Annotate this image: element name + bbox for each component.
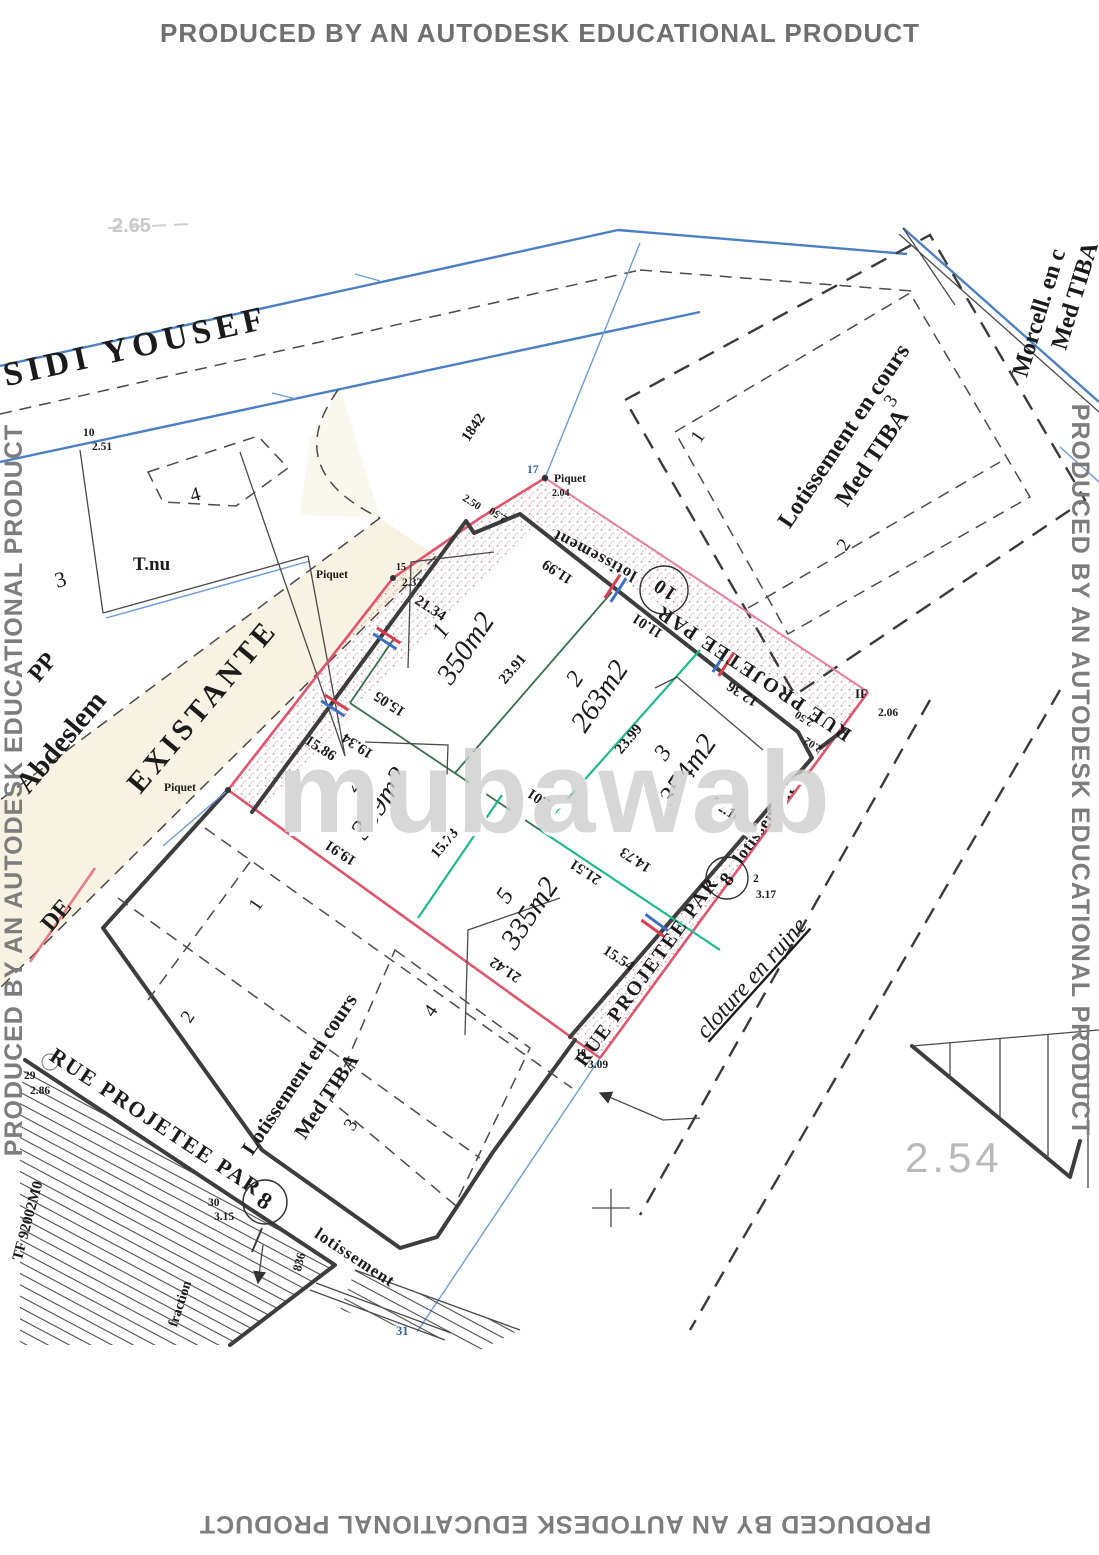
elevation-254: 2.54	[905, 1134, 1003, 1181]
north-block-labels: Lotissement en cours Med TIBA 1 2 3	[687, 339, 916, 555]
point-31-number: 31	[396, 1324, 409, 1338]
point-15-number: 15	[396, 562, 406, 573]
parcel-3-left: 3	[52, 566, 69, 593]
dim-ne1: 11.99	[540, 556, 576, 587]
dim-tie-1842: 1842	[459, 411, 489, 445]
mubawab-watermark: mubawab mubawab	[277, 727, 837, 861]
cadastral-plan-page: PRODUCED BY AN AUTODESK EDUCATIONAL PROD…	[0, 0, 1099, 1555]
sidi-yousef-road-lines	[0, 230, 912, 518]
point-29-number: 29	[24, 1070, 36, 1082]
dim-depth3: 15.05	[371, 687, 408, 719]
pp-label: PP	[23, 648, 62, 687]
point-17-value: 2.04	[552, 488, 570, 499]
point-17-piquet: Piquet	[554, 473, 586, 485]
autodesk-watermark-right: PRODUCED BY AN AUTODESK EDUCATIONAL PROD…	[1066, 404, 1094, 1136]
south-parcel-3: 3	[340, 1115, 363, 1135]
dim-depth1: 23.91	[496, 651, 530, 687]
south-block-labels: Lotissement en cours Med TIBA 1 2 3 4	[177, 895, 443, 1159]
point-29-value: 2.86	[30, 1085, 50, 1097]
point-30-value: 3.15	[214, 1211, 234, 1223]
point-17-number: 17	[527, 464, 539, 476]
brand-watermark: mubawab	[277, 727, 833, 857]
autodesk-watermark-bottom: PRODUCED BY AN AUTODESK EDUCATIONAL PROD…	[199, 1510, 931, 1538]
south-parcel-4: 4	[420, 1001, 443, 1021]
south-parcel-1: 1	[245, 895, 268, 915]
lot-5-area: 335m2	[494, 872, 565, 956]
point-if-name: IF	[855, 686, 868, 701]
north-parcel-3: 3	[880, 391, 903, 411]
point-10-value: 2.51	[92, 441, 112, 453]
point-15-value: 2.32	[402, 577, 422, 589]
point-15-piquet: Piquet	[316, 569, 348, 581]
plan-drawing: PRODUCED BY AN AUTODESK EDUCATIONAL PROD…	[0, 0, 1099, 1555]
dim-jog1: 2.50	[460, 492, 483, 513]
point-10-number: 10	[83, 427, 95, 439]
point-18-value: 3.09	[588, 1059, 608, 1071]
cloture-en-ruine-label: cloture en ruine	[691, 913, 813, 1044]
north-parcel-1: 1	[687, 427, 710, 447]
south-parcel-2: 2	[177, 1007, 200, 1027]
point-2-number: 2	[753, 873, 759, 885]
faint-text-topleft: 2.65	[112, 215, 151, 237]
point-30-number: 30	[208, 1197, 220, 1209]
point-2-value: 3.17	[756, 889, 776, 901]
lot-2-area: 263m2	[564, 655, 635, 738]
autodesk-watermark-top: PRODUCED BY AN AUTODESK EDUCATIONAL PROD…	[160, 18, 920, 48]
lot-5-number: 5	[491, 884, 519, 908]
tnu-label: T.nu	[133, 554, 171, 575]
morcell-labels: Morcell. en c Med TIBA	[1008, 238, 1099, 379]
north-parcel-2: 2	[833, 535, 856, 555]
street-sidi-yousef: SIDI YOUSEF	[0, 299, 272, 394]
lot-2-number: 2	[561, 667, 589, 691]
point-18-number: 18	[576, 1048, 586, 1059]
point-west-piquet: Piquet	[164, 782, 196, 794]
point-if-value: 2.06	[878, 707, 898, 719]
